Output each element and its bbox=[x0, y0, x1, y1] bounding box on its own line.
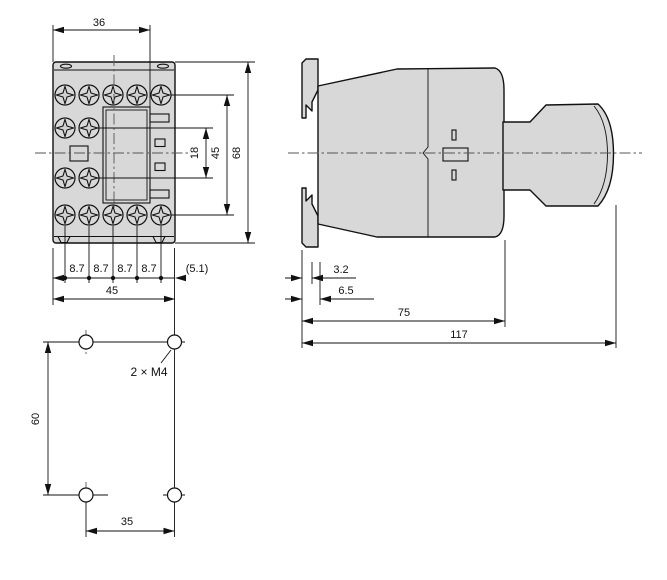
din-clip-top bbox=[302, 59, 318, 118]
dim-60-label: 60 bbox=[30, 413, 42, 425]
dim-45v-label: 45 bbox=[210, 147, 222, 159]
dim-pitch-3: 8.7 bbox=[117, 263, 132, 275]
dim-3-2-label: 3.2 bbox=[333, 264, 348, 276]
dim-75-label: 75 bbox=[398, 307, 410, 319]
dim-68-label: 68 bbox=[231, 147, 243, 159]
center-cover bbox=[103, 107, 150, 203]
dimension-drawing: 36 18 45 68 8.7 8.7 8.7 8.7 (5. bbox=[0, 0, 667, 580]
front-view bbox=[35, 55, 188, 243]
dim-5-1-label: (5.1) bbox=[186, 263, 209, 275]
dim-117-label: 117 bbox=[450, 329, 468, 341]
dim-36-label: 36 bbox=[93, 17, 105, 29]
dim-45-width-label: 45 bbox=[106, 285, 118, 297]
dim-35-label: 35 bbox=[121, 516, 133, 528]
dim-18-label: 18 bbox=[189, 147, 201, 159]
dim-pitch-1: 8.7 bbox=[69, 263, 84, 275]
side-view bbox=[288, 59, 642, 247]
dim-6-5-label: 6.5 bbox=[338, 285, 353, 297]
contactor-side-body bbox=[318, 68, 504, 237]
mounting-hole-top-left bbox=[79, 335, 93, 349]
hole-spec-label: 2 × M4 bbox=[130, 365, 167, 379]
din-clip-bottom bbox=[302, 188, 318, 247]
mounting-hole-bottom-left bbox=[79, 488, 93, 502]
mounting-hole-top-right bbox=[168, 335, 182, 349]
mounting-hole-bottom-right bbox=[168, 488, 182, 502]
test-tab bbox=[70, 146, 88, 161]
drawing-canvas: 36 18 45 68 8.7 8.7 8.7 8.7 (5. bbox=[0, 0, 667, 580]
mounting-hole-pattern: 60 35 2 × M4 bbox=[30, 330, 185, 537]
dim-pitch-4: 8.7 bbox=[141, 263, 156, 275]
coil-end bbox=[503, 104, 614, 206]
dim-pitch-2: 8.7 bbox=[93, 263, 108, 275]
